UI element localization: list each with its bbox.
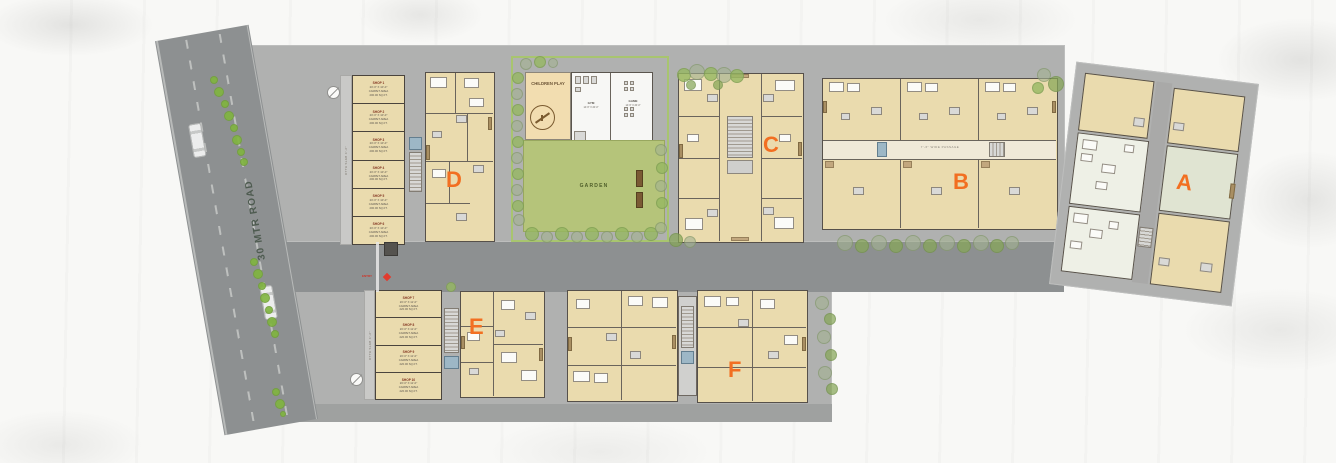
internal-road-lower bbox=[300, 404, 832, 422]
interior-wall bbox=[610, 73, 611, 146]
interior-wall bbox=[426, 161, 493, 162]
furniture bbox=[501, 300, 515, 310]
bathroom bbox=[768, 351, 779, 359]
balcony bbox=[981, 161, 990, 168]
building-f-west-wing bbox=[567, 290, 678, 402]
bathroom bbox=[575, 87, 581, 92]
tree-icon bbox=[824, 313, 836, 325]
balcony bbox=[731, 237, 749, 241]
children-play-label: CHILDREN PLAY bbox=[529, 81, 567, 86]
staircase bbox=[409, 152, 422, 192]
bathroom bbox=[871, 107, 882, 115]
furniture bbox=[784, 335, 798, 345]
tree-icon bbox=[512, 168, 524, 180]
tree-icon bbox=[1048, 76, 1064, 92]
interior-wall bbox=[568, 327, 621, 328]
tree-icon bbox=[555, 227, 569, 241]
furniture bbox=[1003, 83, 1016, 92]
furniture bbox=[847, 83, 860, 92]
tree-icon bbox=[818, 366, 832, 380]
shop-unit: SHOP 620'-0" X 10'-0"CARPET AREA200.00 S… bbox=[353, 216, 404, 244]
interior-wall bbox=[900, 160, 901, 228]
tree-icon bbox=[224, 111, 234, 121]
tree-icon bbox=[210, 76, 218, 84]
tree-icon bbox=[512, 136, 524, 148]
bathroom bbox=[931, 187, 942, 195]
shop-unit: SHOP 220'-0" X 10'-0"CARPET AREA200.00 S… bbox=[353, 103, 404, 131]
tree-icon bbox=[240, 158, 248, 166]
driveway-strip-bottom: OTTA SLAB 4'-6" bbox=[364, 290, 375, 400]
bathroom bbox=[1009, 187, 1020, 195]
bathroom bbox=[630, 87, 634, 91]
shop-unit: SHOP 720'-0" X 11'-0"CARPET AREA220.00 S… bbox=[376, 291, 441, 317]
bathroom bbox=[763, 207, 774, 215]
furniture bbox=[1108, 221, 1119, 230]
furniture bbox=[704, 296, 721, 307]
tree-icon bbox=[631, 231, 643, 243]
interior-wall bbox=[679, 158, 719, 159]
balcony bbox=[568, 337, 572, 351]
utility-box bbox=[384, 242, 398, 256]
shop-unit: SHOP 120'-0" X 10'-0"CARPET AREA200.00 S… bbox=[353, 76, 404, 103]
tree-icon bbox=[548, 58, 558, 68]
tree-icon bbox=[571, 231, 583, 243]
tree-icon bbox=[837, 235, 853, 251]
staircase bbox=[1137, 227, 1153, 249]
bathroom bbox=[630, 113, 634, 117]
bathroom bbox=[624, 87, 628, 91]
passage-label: 7'-6" WIDE PASSAGE bbox=[823, 145, 1057, 149]
tree-icon bbox=[655, 180, 667, 192]
shop-unit: SHOP 920'-0" X 11'-0"CARPET AREA220.00 S… bbox=[376, 345, 441, 372]
bathroom bbox=[1173, 122, 1185, 131]
bathroom bbox=[949, 107, 960, 115]
block-label-a: A bbox=[1175, 171, 1193, 195]
furniture bbox=[726, 297, 739, 306]
balcony bbox=[539, 348, 543, 361]
tree-icon bbox=[232, 135, 242, 145]
tree-icon bbox=[265, 306, 273, 314]
tree-icon bbox=[684, 236, 696, 248]
apartment-unit bbox=[1167, 88, 1245, 152]
balcony bbox=[1052, 101, 1056, 113]
balcony bbox=[798, 142, 802, 156]
furniture bbox=[430, 77, 447, 88]
bathroom bbox=[707, 209, 718, 217]
staircase bbox=[727, 116, 753, 158]
furniture bbox=[1095, 181, 1108, 190]
furniture bbox=[985, 82, 1000, 92]
furniture bbox=[687, 134, 699, 142]
tree-icon bbox=[214, 87, 224, 97]
bathroom bbox=[456, 213, 467, 221]
tree-icon bbox=[511, 120, 523, 132]
bathroom bbox=[432, 131, 442, 138]
furniture bbox=[521, 370, 537, 381]
interior-wall bbox=[762, 116, 802, 117]
furniture bbox=[907, 82, 922, 92]
elevator bbox=[409, 137, 422, 150]
furniture bbox=[775, 80, 795, 91]
tree-icon bbox=[817, 330, 831, 344]
interior-wall bbox=[467, 113, 468, 161]
balcony bbox=[903, 161, 912, 168]
furniture bbox=[760, 299, 775, 309]
bathroom bbox=[841, 113, 850, 120]
tree-icon bbox=[534, 56, 546, 68]
shop-unit: SHOP 820'-0" X 11'-0"CARPET AREA220.00 S… bbox=[376, 317, 441, 344]
tree-icon bbox=[957, 239, 971, 253]
shop-unit: SHOP 1020'-0" X 11'-0"CARPET AREA220.00 … bbox=[376, 372, 441, 399]
building-f-east-wing: F bbox=[697, 290, 808, 403]
building-a: A bbox=[1058, 71, 1250, 298]
tree-icon bbox=[511, 184, 523, 196]
tree-icon bbox=[655, 222, 667, 234]
bathroom bbox=[473, 165, 484, 173]
tree-icon bbox=[601, 231, 613, 243]
interior-wall bbox=[978, 79, 979, 140]
block-label-e: E bbox=[469, 316, 484, 338]
tree-icon bbox=[512, 72, 524, 84]
stair-landing bbox=[727, 160, 753, 174]
children-play-area: CHILDREN PLAY bbox=[525, 72, 571, 140]
shop-unit: SHOP 420'-0" X 10'-0"CARPET AREA200.00 S… bbox=[353, 160, 404, 188]
tree-icon bbox=[713, 80, 723, 90]
tree-icon bbox=[275, 399, 285, 409]
car bbox=[188, 123, 207, 159]
tree-icon bbox=[221, 100, 229, 108]
interior-wall bbox=[621, 291, 622, 400]
furniture bbox=[1101, 164, 1116, 175]
tree-icon bbox=[871, 235, 887, 251]
balcony bbox=[802, 337, 806, 351]
bathroom bbox=[630, 351, 641, 359]
interior-wall bbox=[455, 73, 456, 113]
block-label-c: C bbox=[763, 134, 779, 156]
building-e: E bbox=[460, 291, 545, 398]
bathroom bbox=[495, 330, 505, 337]
apartment-unit-highlight bbox=[1159, 145, 1239, 219]
bathroom bbox=[919, 113, 928, 120]
interior-wall bbox=[494, 344, 543, 345]
tree-icon bbox=[512, 200, 524, 212]
tree-icon bbox=[826, 383, 838, 395]
interior-wall bbox=[679, 198, 719, 199]
furniture bbox=[774, 217, 794, 229]
road-edge-line bbox=[156, 41, 227, 435]
shops-block-top: SHOP 120'-0" X 10'-0"CARPET AREA200.00 S… bbox=[352, 75, 405, 245]
bathroom bbox=[583, 76, 589, 84]
staircase bbox=[444, 308, 459, 353]
balcony bbox=[426, 145, 430, 160]
tree-icon bbox=[669, 233, 683, 247]
furniture bbox=[1089, 229, 1103, 240]
furniture bbox=[925, 83, 938, 92]
apartment-unit bbox=[1078, 73, 1155, 139]
tree-icon bbox=[512, 104, 524, 116]
furniture bbox=[594, 373, 608, 383]
tree-icon bbox=[973, 235, 989, 251]
shops-block-bottom: SHOP 720'-0" X 11'-0"CARPET AREA220.00 S… bbox=[375, 290, 442, 400]
bathroom bbox=[1027, 107, 1038, 115]
garden-block: CHILDREN PLAY GYM 14'-6" X 20'-0" GAME 1… bbox=[511, 56, 669, 242]
elevator bbox=[444, 356, 459, 369]
tree-icon bbox=[260, 293, 270, 303]
bench bbox=[636, 170, 643, 187]
block-label-f: F bbox=[728, 359, 741, 381]
tree-icon bbox=[815, 296, 829, 310]
tree-icon bbox=[250, 258, 258, 266]
interior-wall bbox=[753, 367, 806, 368]
interior-wall bbox=[753, 327, 806, 328]
furniture bbox=[685, 218, 703, 230]
bathroom bbox=[606, 333, 617, 341]
interior-wall bbox=[622, 365, 676, 366]
bathroom bbox=[738, 319, 749, 327]
building-c: C bbox=[678, 73, 804, 243]
tree-icon bbox=[889, 239, 903, 253]
furniture bbox=[576, 299, 590, 309]
bathroom bbox=[630, 107, 634, 111]
survey-marker-icon bbox=[327, 86, 340, 99]
balcony bbox=[679, 144, 683, 158]
tree-icon bbox=[520, 58, 532, 70]
furniture bbox=[829, 82, 844, 92]
gym-room: GYM 14'-6" X 20'-0" bbox=[576, 101, 606, 109]
tree-icon bbox=[939, 235, 955, 251]
tree-icon bbox=[686, 80, 696, 90]
tree-icon bbox=[272, 388, 280, 396]
bathroom bbox=[624, 113, 628, 117]
balcony bbox=[825, 161, 834, 168]
interior-wall bbox=[719, 74, 720, 241]
balcony bbox=[672, 335, 676, 349]
gate-line bbox=[376, 242, 379, 292]
tree-icon bbox=[511, 88, 523, 100]
bathroom bbox=[1158, 257, 1170, 266]
tree-icon bbox=[923, 239, 937, 253]
tree-icon bbox=[513, 214, 525, 226]
garden-lawn: GARDEN bbox=[523, 140, 665, 232]
bathroom bbox=[1200, 262, 1213, 272]
bathroom bbox=[624, 81, 628, 85]
tree-icon bbox=[271, 330, 279, 338]
elevator bbox=[681, 351, 694, 364]
interior-wall bbox=[426, 203, 470, 204]
tree-icon bbox=[905, 235, 921, 251]
tree-icon bbox=[280, 411, 286, 417]
garden-label: GARDEN bbox=[580, 183, 609, 189]
interior-wall bbox=[426, 113, 493, 114]
interior-wall bbox=[978, 160, 979, 228]
bathroom bbox=[575, 76, 581, 84]
tree-icon bbox=[656, 162, 668, 174]
furniture bbox=[432, 169, 446, 178]
bathroom bbox=[469, 368, 479, 375]
furniture bbox=[1070, 240, 1083, 249]
clubhouse: GYM 14'-6" X 20'-0" GAME 14'-6" X 20'-0" bbox=[571, 72, 653, 147]
interior-wall bbox=[568, 365, 621, 366]
interior-wall bbox=[622, 327, 676, 328]
tree-icon bbox=[855, 239, 869, 253]
passage-corridor bbox=[823, 140, 1056, 160]
shop-unit: SHOP 320'-0" X 10'-0"CARPET AREA200.00 S… bbox=[353, 131, 404, 159]
tree-icon bbox=[615, 227, 629, 241]
furniture bbox=[573, 371, 590, 382]
balcony bbox=[823, 101, 827, 113]
bathroom bbox=[763, 94, 774, 102]
building-d: D bbox=[425, 72, 495, 242]
entry-label: ENTRY bbox=[362, 274, 372, 278]
interior-wall bbox=[762, 198, 802, 199]
tree-icon bbox=[541, 231, 553, 243]
block-label-d: D bbox=[446, 169, 462, 191]
tree-icon bbox=[446, 282, 456, 292]
interior-wall bbox=[752, 291, 753, 401]
furniture bbox=[1073, 212, 1089, 224]
apartment-unit bbox=[1150, 213, 1230, 293]
building-a-group: A bbox=[1049, 62, 1259, 307]
furniture bbox=[501, 352, 517, 363]
bathroom bbox=[456, 115, 467, 123]
tree-icon bbox=[689, 64, 705, 80]
tree-icon bbox=[237, 148, 245, 156]
building-b: 7'-6" WIDE PASSAGE B bbox=[822, 78, 1058, 230]
tree-icon bbox=[655, 144, 667, 156]
game-room: GAME 14'-6" X 20'-0" bbox=[616, 99, 650, 107]
tree-icon bbox=[1032, 82, 1044, 94]
shop-unit: SHOP 520'-0" X 10'-0"CARPET AREA200.00 S… bbox=[353, 188, 404, 216]
furniture bbox=[652, 297, 668, 308]
bathroom bbox=[997, 113, 1006, 120]
interior-wall bbox=[900, 79, 901, 140]
tree-icon bbox=[990, 239, 1004, 253]
bench bbox=[636, 192, 643, 208]
interior-wall bbox=[461, 362, 493, 363]
bathroom bbox=[525, 312, 536, 320]
furniture bbox=[464, 78, 479, 88]
interior-wall bbox=[679, 116, 719, 117]
block-label-b: B bbox=[953, 171, 969, 193]
bathroom bbox=[624, 107, 628, 111]
furniture bbox=[1080, 153, 1093, 162]
bathroom bbox=[707, 94, 718, 102]
tree-icon bbox=[825, 349, 837, 361]
interior-wall bbox=[698, 367, 752, 368]
bathroom bbox=[630, 81, 634, 85]
tree-icon bbox=[267, 317, 277, 327]
furniture bbox=[628, 296, 643, 306]
furniture bbox=[1082, 139, 1098, 151]
tree-icon bbox=[230, 124, 238, 132]
bathroom bbox=[591, 76, 597, 84]
tree-icon bbox=[1005, 236, 1019, 250]
driveway-label: OTTA SLAB 4'-6" bbox=[344, 146, 348, 175]
lane-divider bbox=[185, 40, 255, 426]
seesaw-icon bbox=[530, 105, 555, 130]
bathroom bbox=[1133, 117, 1145, 127]
balcony bbox=[461, 336, 465, 349]
balcony bbox=[488, 117, 492, 130]
driveway-label: OTTA SLAB 4'-6" bbox=[368, 331, 372, 360]
furniture bbox=[1124, 144, 1135, 153]
tree-icon bbox=[585, 227, 599, 241]
staircase bbox=[681, 306, 694, 348]
furniture bbox=[469, 98, 484, 107]
interior-wall bbox=[698, 327, 752, 328]
tree-icon bbox=[525, 227, 539, 241]
tree-icon bbox=[253, 269, 263, 279]
driveway-strip-top: OTTA SLAB 4'-6" bbox=[340, 75, 352, 245]
site-plan-canvas: 30 MTR ROAD OTTA SLAB 4'-6" SHOP 120'-0"… bbox=[0, 0, 1336, 463]
tree-icon bbox=[258, 282, 266, 290]
tree-icon bbox=[511, 152, 523, 164]
survey-marker-icon bbox=[350, 373, 363, 386]
interior-wall bbox=[762, 158, 802, 159]
balcony bbox=[1229, 183, 1236, 198]
furniture bbox=[779, 134, 791, 142]
tree-icon bbox=[730, 69, 744, 83]
tree-icon bbox=[656, 197, 668, 209]
bathroom bbox=[853, 187, 864, 195]
